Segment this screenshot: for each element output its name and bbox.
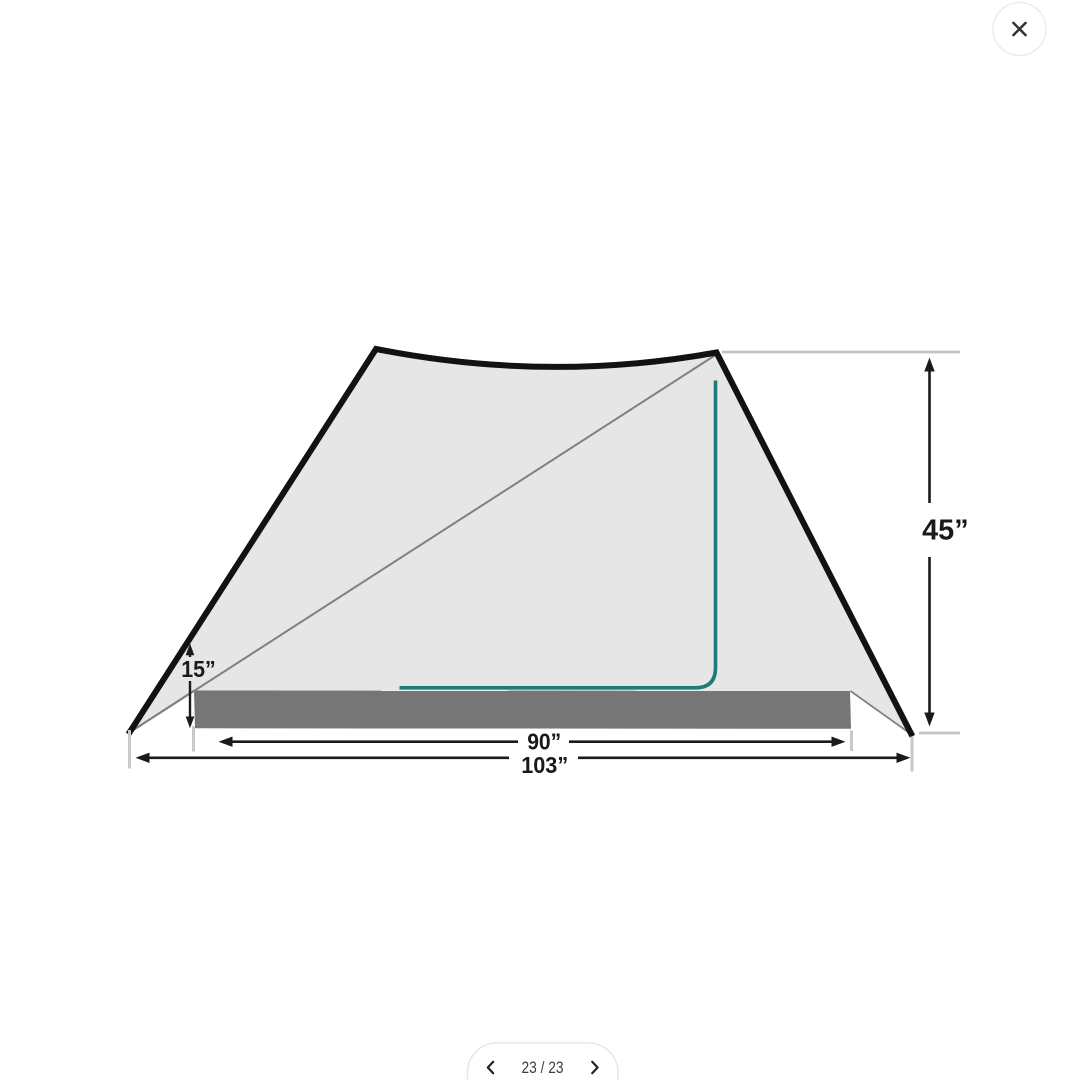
svg-text:45”: 45” bbox=[922, 515, 969, 547]
svg-text:90”: 90” bbox=[527, 729, 561, 755]
svg-text:15”: 15” bbox=[181, 656, 216, 682]
svg-text:103”: 103” bbox=[521, 752, 568, 778]
svg-text:23 / 23: 23 / 23 bbox=[522, 1059, 564, 1077]
